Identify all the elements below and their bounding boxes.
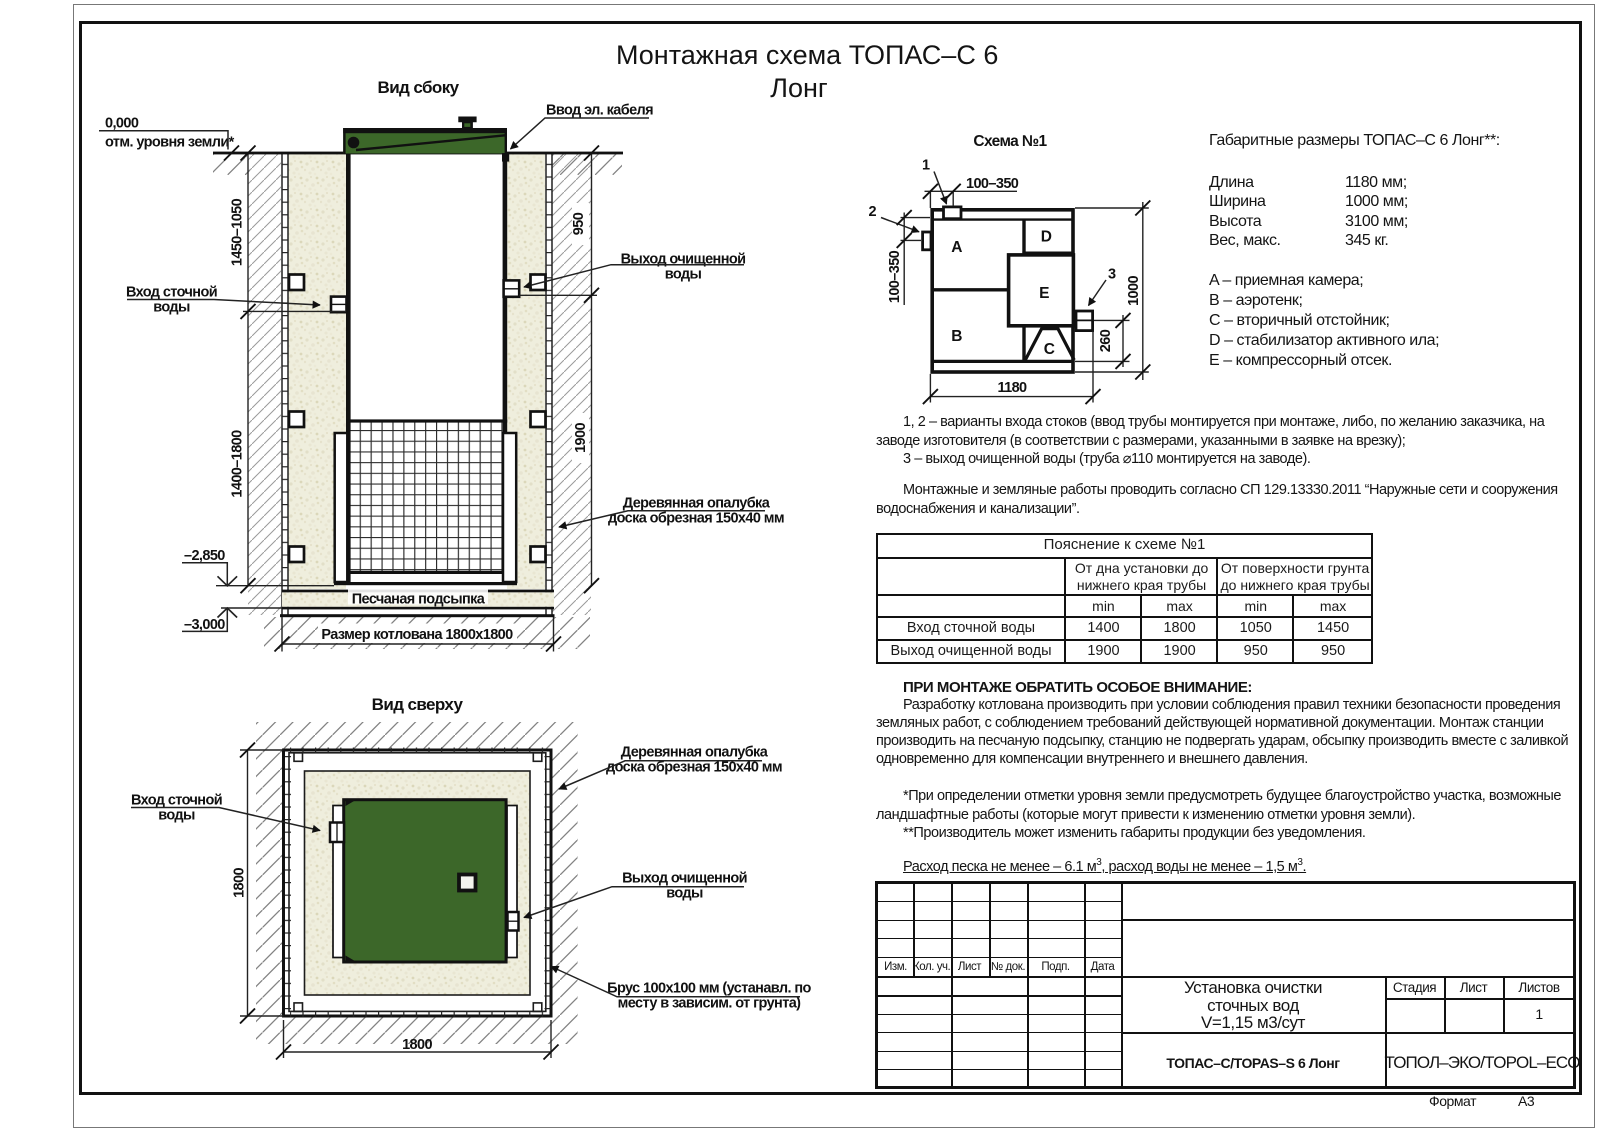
- svg-text:Деревянная опалубка: Деревянная опалубка: [623, 496, 771, 512]
- svg-text:воды: воды: [666, 886, 703, 902]
- svg-text:1: 1: [922, 158, 930, 174]
- svg-text:3: 3: [1108, 267, 1116, 283]
- svg-text:Брус 100х100 мм (устанавл. по: Брус 100х100 мм (устанавл. по: [607, 981, 811, 997]
- svg-text:Вход сточной: Вход сточной: [131, 793, 222, 809]
- svg-text:доска обрезная 150х40 мм: доска обрезная 150х40 мм: [608, 511, 784, 527]
- svg-text:Вид сверху: Вид сверху: [372, 695, 464, 714]
- svg-text:месту в зависим. от грунта): месту в зависим. от грунта): [618, 996, 802, 1012]
- svg-text:доска обрезная 150х40 мм: доска обрезная 150х40 мм: [606, 760, 782, 776]
- svg-text:260: 260: [1098, 329, 1114, 352]
- svg-text:Выход очищенной: Выход очищенной: [622, 871, 747, 887]
- svg-text:A: A: [951, 239, 962, 256]
- svg-text:Вход сточной: Вход сточной: [126, 285, 217, 301]
- svg-text:–2,850: –2,850: [184, 548, 225, 564]
- svg-text:Песчаная подсыпка: Песчаная подсыпка: [352, 592, 486, 608]
- svg-text:2: 2: [869, 204, 877, 220]
- svg-text:отм. уровня земли*: отм. уровня земли*: [105, 135, 235, 151]
- svg-text:Схема №1: Схема №1: [973, 133, 1047, 150]
- svg-text:–3,000: –3,000: [184, 617, 225, 633]
- svg-text:B: B: [951, 328, 962, 345]
- svg-text:100–350: 100–350: [887, 250, 903, 303]
- svg-text:Ввод эл. кабеля: Ввод эл. кабеля: [546, 103, 653, 119]
- svg-text:воды: воды: [665, 267, 702, 283]
- svg-text:950: 950: [571, 212, 587, 235]
- svg-text:1000: 1000: [1126, 276, 1142, 306]
- svg-text:E: E: [1039, 285, 1049, 302]
- svg-text:1180: 1180: [997, 380, 1027, 396]
- svg-text:C: C: [1044, 341, 1055, 358]
- svg-text:Вид сбоку: Вид сбоку: [378, 78, 460, 97]
- svg-text:воды: воды: [158, 808, 195, 824]
- svg-text:100–350: 100–350: [966, 176, 1019, 192]
- svg-text:Размер котлована 1800х1800: Размер котлована 1800х1800: [321, 627, 513, 643]
- svg-text:0,000: 0,000: [105, 116, 139, 132]
- svg-text:D: D: [1041, 229, 1052, 246]
- svg-text:1450–1050: 1450–1050: [230, 198, 246, 266]
- svg-text:воды: воды: [153, 300, 190, 316]
- svg-text:1800: 1800: [402, 1037, 432, 1053]
- svg-text:1800: 1800: [232, 868, 248, 898]
- svg-text:Деревянная опалубка: Деревянная опалубка: [621, 745, 769, 761]
- svg-text:1400–1800: 1400–1800: [230, 430, 246, 498]
- svg-text:1900: 1900: [573, 423, 589, 453]
